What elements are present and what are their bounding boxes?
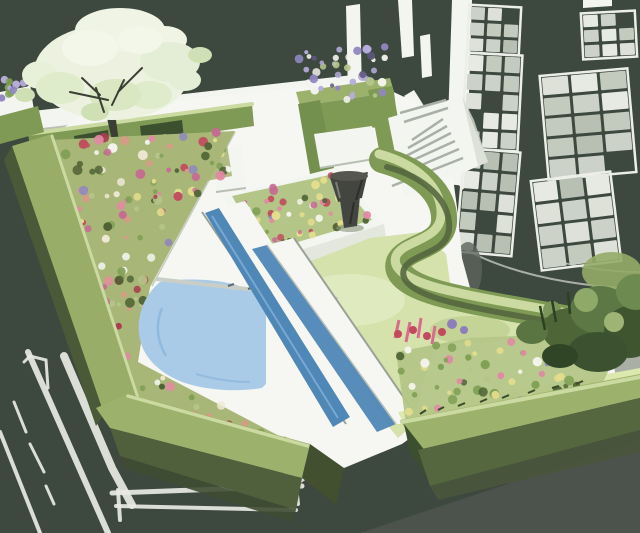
garden-illustration-canvas bbox=[0, 0, 640, 533]
garden-illustration bbox=[0, 0, 640, 533]
door-frame bbox=[420, 34, 432, 78]
